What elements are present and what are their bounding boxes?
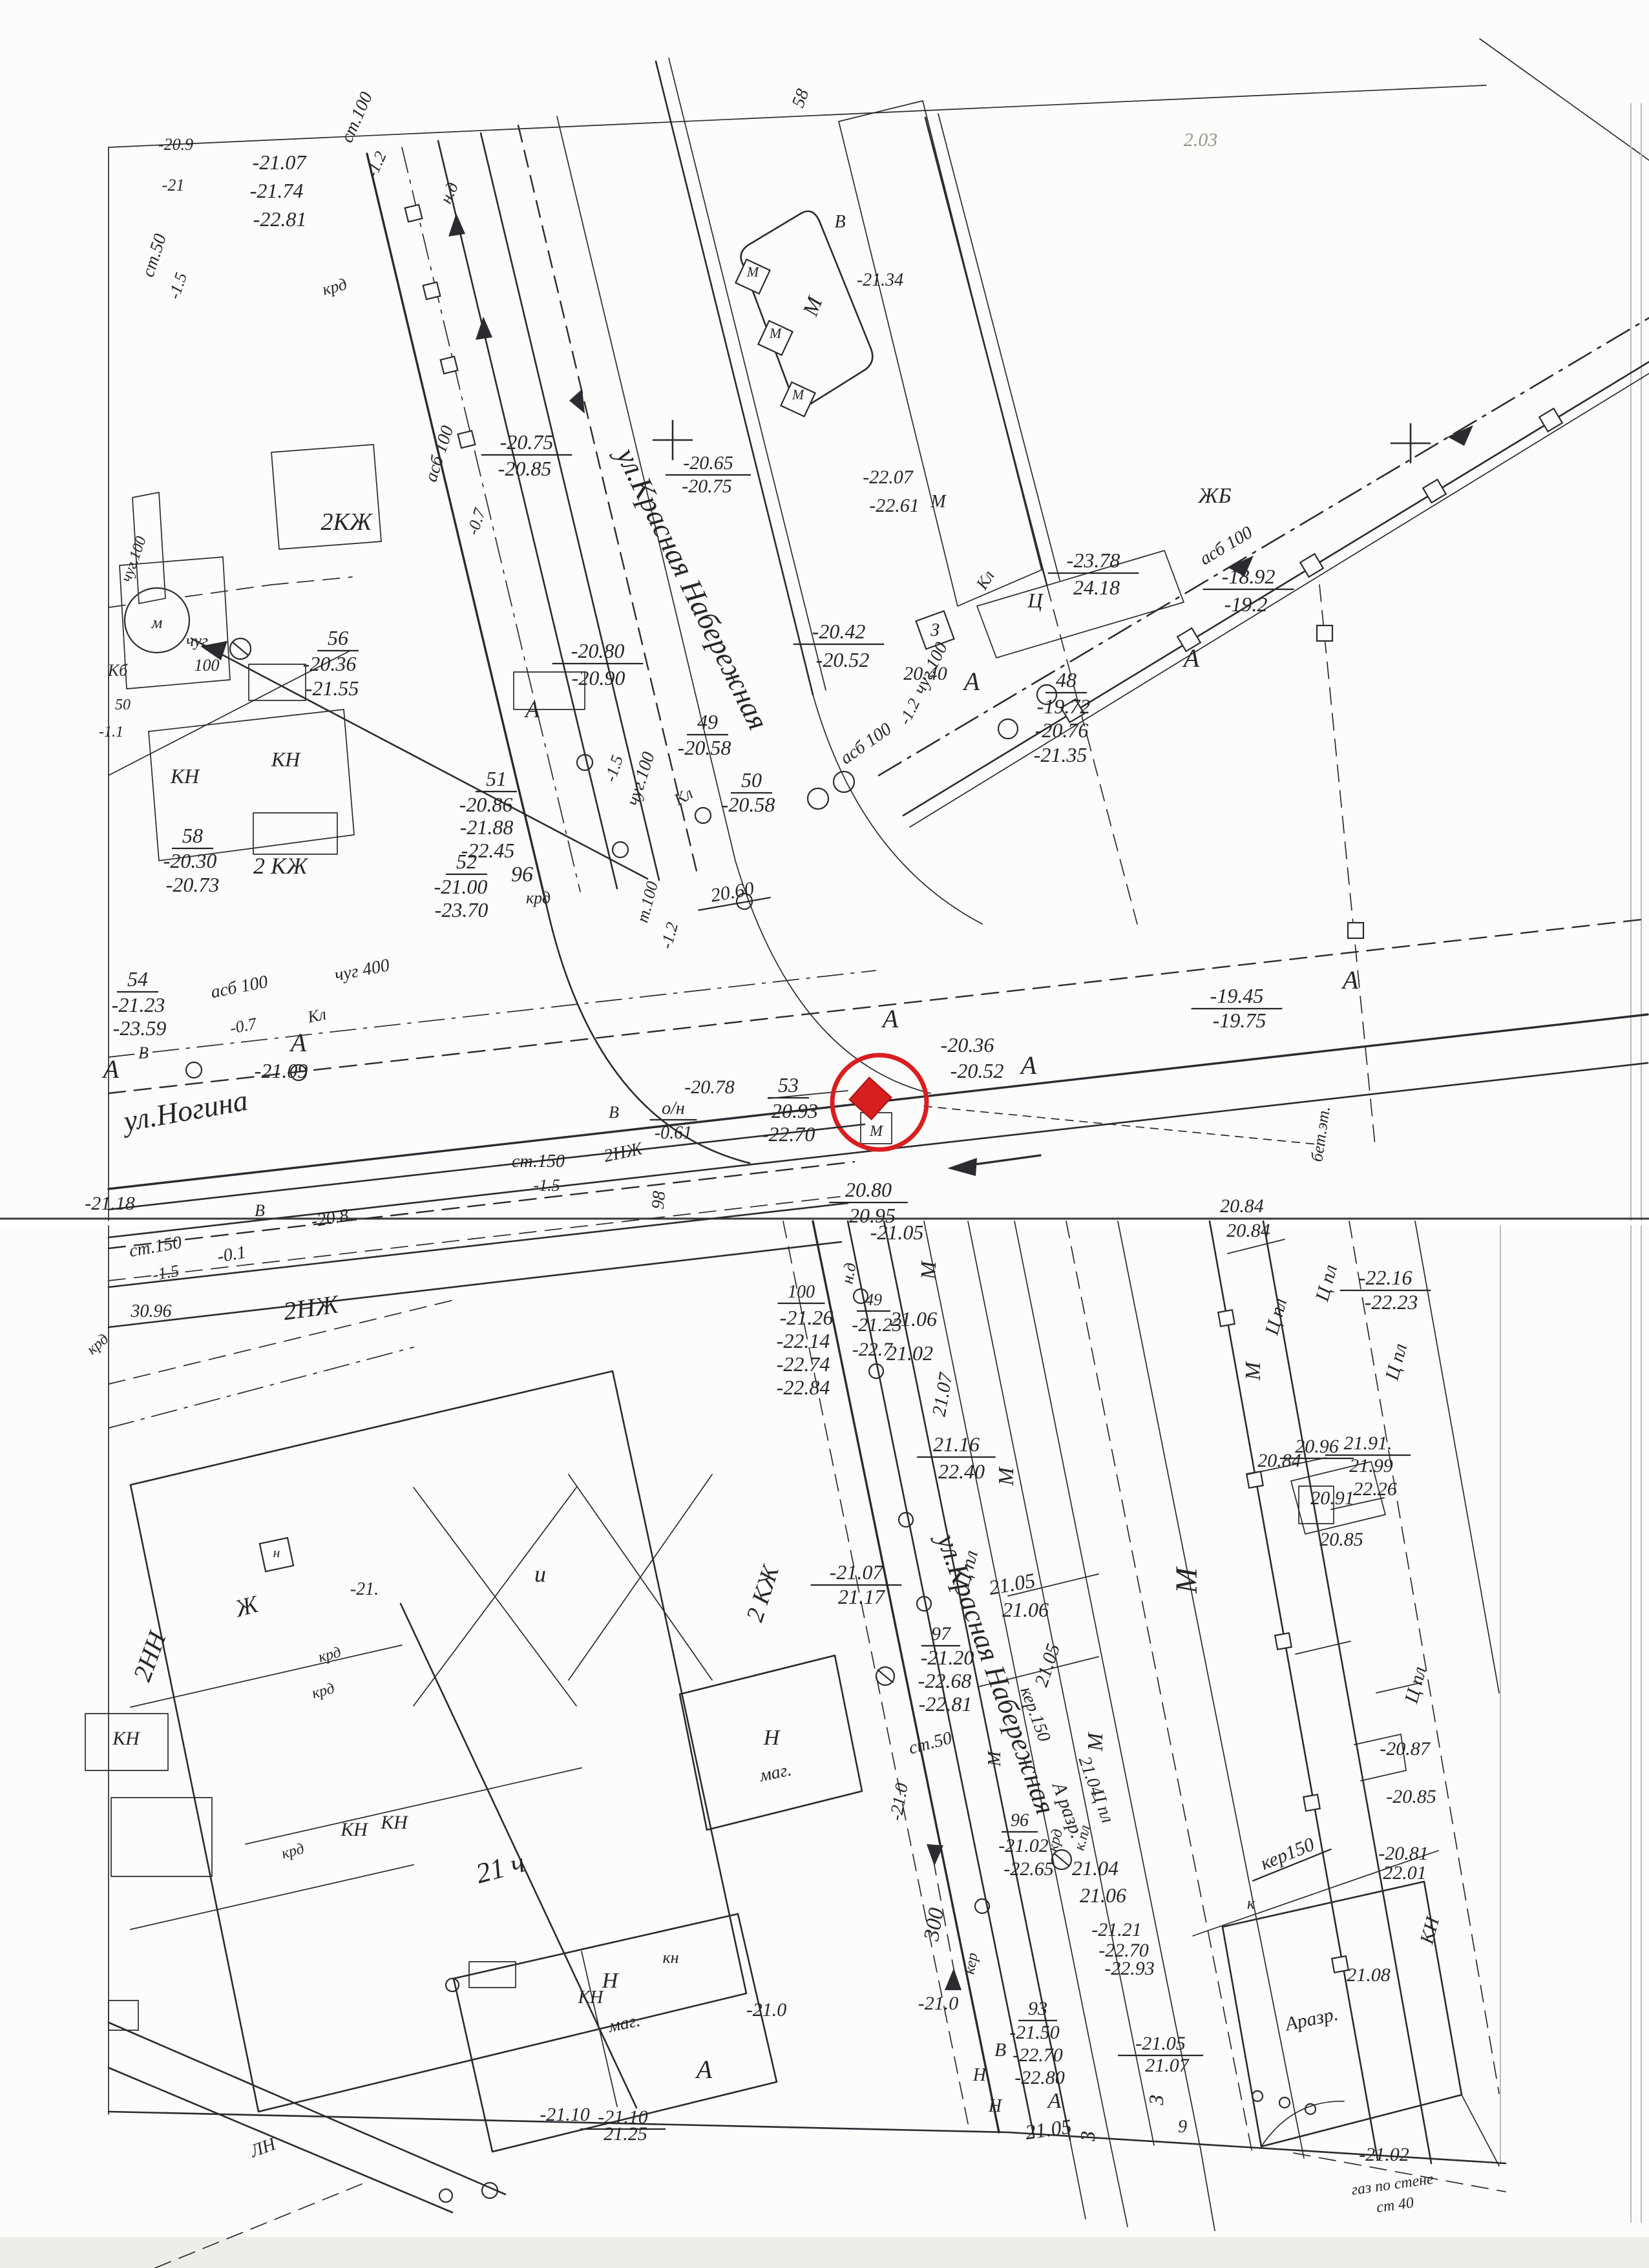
map-label: -20.58 [678,736,731,759]
map-label: 21.17 [838,1585,886,1608]
map-label: -23.70 [435,898,488,921]
map-label: 49 [697,710,718,733]
map-label: В [138,1044,149,1062]
map-label: -21 [162,176,185,194]
map-label: 20.91 [1310,1487,1354,1509]
map-label: -21.26 [780,1306,834,1329]
map-label: -21.20 [921,1646,974,1669]
map-label: -21.0 [746,1999,787,2021]
map-label: А [1019,1051,1037,1080]
map-label: чуг [186,631,208,650]
map-label: 56 [328,626,348,649]
scanned-survey-map-page: -20.9-21-21.07-21.74-22.81ст.50-1.5ст.10… [0,0,1649,2268]
map-label: Кб [107,661,128,680]
map-label: КН [112,1728,141,1749]
map-label: 96 [511,863,533,887]
map-label: и [534,1561,546,1587]
map-label: 21.07 [1145,2055,1190,2076]
map-label: КН [170,764,200,788]
map-label: А [1182,644,1200,673]
map-label: М [1241,1361,1265,1381]
map-label: Ц [1027,589,1044,612]
map-label: 48 [1056,668,1077,691]
map-label: -21. [350,1579,379,1599]
map-label: 21.99 [1349,1455,1393,1476]
map-label: 54 [127,967,148,991]
map-label: В [255,1201,265,1220]
map-label: 52 [456,850,477,873]
map-label: КН [271,748,301,771]
map-label: Кл [306,1005,328,1027]
map-label: -22.23 [1365,1290,1418,1314]
map-label: А [101,1055,120,1084]
map-label: 22.26 [1353,1478,1397,1500]
map-label: М [869,1123,884,1140]
map-label: 51 [486,767,507,790]
map-label: 50 [741,768,762,792]
map-label: -21.0 [918,1993,959,2014]
map-label: -21.05 [1135,2033,1186,2054]
map-label: -20.78 [684,1076,735,1098]
survey-map: -20.9-21-21.07-21.74-22.81ст.50-1.5ст.10… [0,0,1649,2268]
map-label: М [769,325,782,341]
map-label: -21.21 [1091,1919,1142,1940]
map-label: н.д [838,1261,860,1285]
map-label: 98 [648,1190,669,1210]
scan-bottom-band [0,2237,1649,2268]
map-label: З [930,620,940,640]
map-label: Н [972,2065,987,2085]
map-label: 21.02 [887,1341,933,1365]
map-label: -21.34 [857,270,903,290]
map-label: 97 [931,1623,952,1644]
map-label: 20.80 [845,1178,892,1201]
map-label: 58 [182,824,203,847]
map-label: -22.93 [1104,1958,1155,1979]
map-label: -21.05 [870,1221,924,1244]
map-label: -20.42 [812,620,866,643]
map-label: -21.23 [112,993,165,1016]
map-label: -20.87 [1380,1738,1431,1759]
map-label: 21.91. [1344,1433,1392,1454]
map-label: -19.72 [1037,695,1091,718]
map-label: -22.74 [777,1352,830,1376]
map-label: -22.65 [1003,1858,1054,1880]
map-label: -22.70 [762,1122,815,1146]
map-label: 2.03 [1184,129,1218,151]
map-label: -20.30 [163,849,217,872]
map-label: н [273,1544,280,1560]
map-label: А [695,2055,713,2084]
map-label: -22.80 [1014,2067,1065,2088]
map-label: -22.14 [777,1329,830,1352]
map-label: А [962,667,980,696]
map-label: -22.81 [919,1692,972,1716]
map-label: -22.68 [918,1669,972,1692]
map-label: -0.61 [655,1123,692,1143]
map-label: -21.09 [255,1059,308,1082]
map-label: -21.02 [1359,2144,1409,2165]
map-label: -20.75 [500,430,554,454]
map-label: 2 КЖ [253,853,309,879]
map-label: Н [602,1969,620,1993]
map-label: -21.88 [460,815,514,839]
map-label: Н [988,2096,1003,2116]
map-label: 100 [788,1282,815,1302]
map-label: КН [340,1819,369,1840]
map-label: кн [662,1948,678,1967]
map-label: А [881,1004,899,1033]
map-label: А [1047,2089,1062,2113]
map-label: -20.9 [158,135,193,154]
map-label: крд [526,888,551,907]
map-label: 21.25 [604,2123,647,2145]
map-label: -20.75 [682,476,732,497]
map-label: 21.06 [890,1307,937,1330]
map-label: -20.76 [1035,719,1089,742]
map-label: 20.96 [1295,1436,1339,1457]
map-label: м [151,613,163,632]
map-label: КН [578,1988,605,2008]
map-label: -21.02 [998,1835,1049,1856]
map-label: М [1170,1566,1204,1594]
map-label: к [1247,1894,1255,1913]
map-label: -22.84 [777,1376,830,1399]
map-label: 21.08 [1347,1964,1391,1986]
map-label: 93 [1028,1998,1047,2019]
map-label: Н [763,1726,781,1750]
map-label: М [1084,1732,1108,1752]
map-label: З [1144,2095,1168,2105]
map-label: А [289,1028,307,1057]
map-label: 49 [865,1290,882,1309]
map-label: -22.07 [863,467,914,488]
paper [0,0,1649,2268]
map-label: -20.80 [571,639,625,662]
map-label: М [930,492,947,512]
map-label: 20.85 [1319,1529,1363,1550]
map-label: -22.70 [1013,2044,1063,2066]
map-label: -1.1 [99,724,123,740]
map-label: -19.75 [1213,1009,1266,1032]
map-label: В [609,1103,619,1122]
map-label: -21.55 [306,677,359,700]
map-label: -18.92 [1222,565,1276,588]
map-label: -19.2 [1224,593,1268,616]
map-label: -20.86 [459,793,513,816]
map-label: -21.00 [434,875,488,898]
map-label: -20.73 [166,873,220,896]
map-label: -20.81 [1378,1843,1429,1864]
map-label: -19.45 [1210,984,1264,1007]
map-label: 20.40 [903,663,947,684]
map-label: -20.65 [683,452,733,474]
map-label: -20.90 [572,666,625,689]
map-label: М [917,1260,941,1280]
map-label: -20.36 [303,652,357,675]
map-label: 53 [778,1073,799,1097]
map-label: 21.06 [1080,1884,1126,1907]
map-label: -20.36 [941,1033,994,1056]
map-label: В [834,212,845,232]
map-label: -20.52 [951,1059,1004,1082]
map-label: -22.16 [1359,1266,1413,1289]
map-label: -21.74 [250,179,304,202]
map-label: -23.59 [113,1016,167,1040]
map-label: -1.5 [533,1176,560,1195]
map-label: А [524,697,540,722]
map-label: 22.01 [1383,1862,1427,1884]
map-label: 20.84 [1226,1220,1270,1241]
map-label: КН [380,1812,409,1833]
map-label: -20.85 [498,457,552,480]
map-label: 21.16 [933,1433,980,1456]
map-label: 2КЖ [320,509,373,536]
map-label: -23.78 [1067,549,1120,572]
map-label: 20.93 [772,1099,818,1122]
map-label: -21.07 [253,151,308,174]
map-label: 50 [115,697,131,713]
map-label: 20.84 [1220,1195,1264,1217]
map-label: М [792,386,805,403]
map-label: -21.18 [85,1193,135,1214]
map-label: -21.50 [1009,2022,1060,2043]
map-label: 22.40 [938,1460,985,1483]
map-label: 96 [1011,1811,1029,1831]
map-label: -20.52 [816,648,870,671]
map-label: М [746,264,760,280]
map-label: -21.07 [830,1560,885,1584]
map-label: 9 [1178,2117,1187,2137]
map-label: -20.85 [1386,1786,1436,1807]
map-label: 30.96 [131,1301,172,1321]
map-label: ЖБ [1197,484,1231,508]
map-label: А [1341,965,1359,994]
map-label: 21.04 [1072,1856,1119,1880]
map-label: М [994,1466,1018,1486]
map-label: -21.10 [540,2104,590,2125]
map-label: 100 [194,656,220,675]
map-label: о/н [662,1098,685,1118]
map-label: В [994,2039,1006,2061]
map-label: -22.61 [869,495,919,516]
map-label: -20.58 [722,793,775,816]
map-label: З [1076,2131,1099,2141]
map-label: -21.35 [1034,743,1087,766]
map-label: -22.81 [253,207,307,231]
map-label: М [985,1750,1005,1767]
map-label: ст.150 [512,1151,565,1171]
map-label: 21.06 [1002,1598,1049,1621]
map-label: 24.18 [1073,576,1120,599]
